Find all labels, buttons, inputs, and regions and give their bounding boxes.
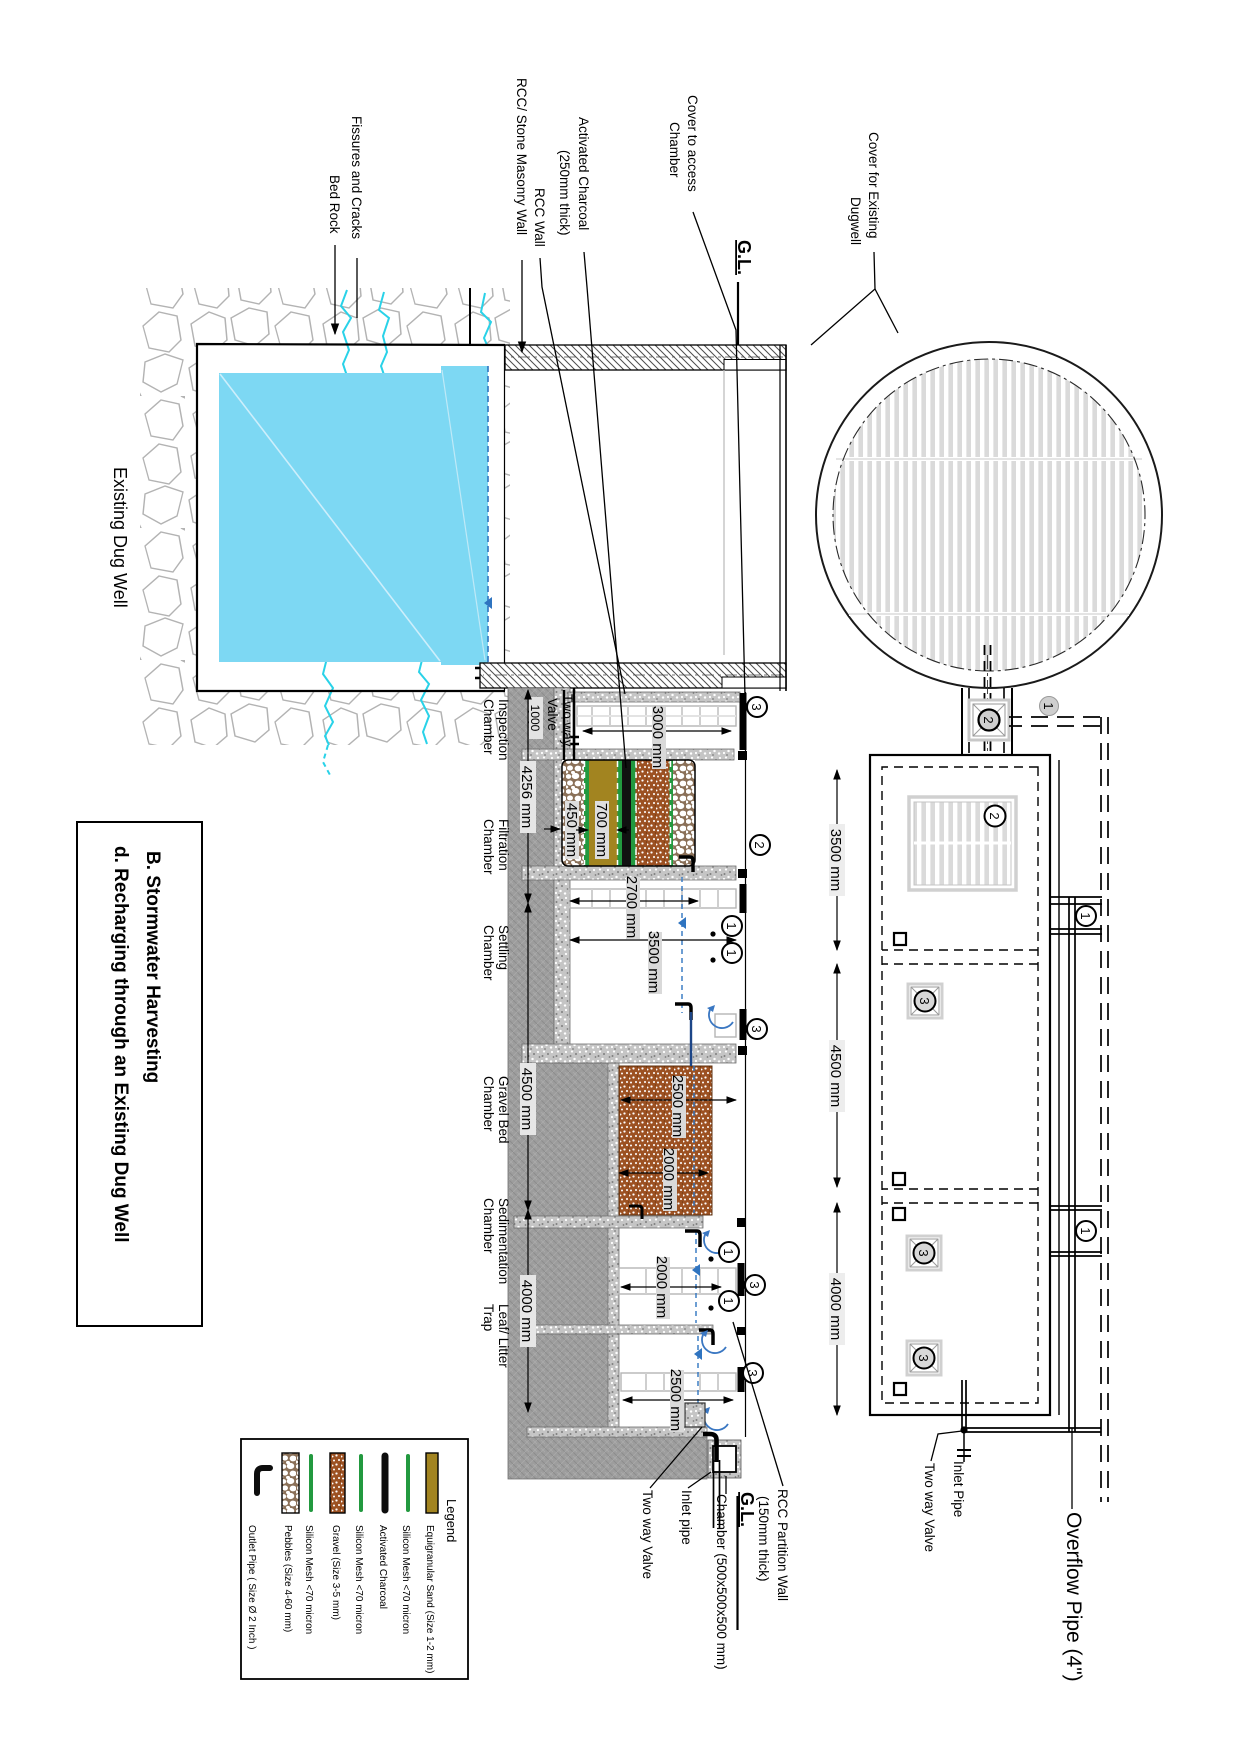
- svg-text:3: 3: [747, 1281, 762, 1288]
- svg-text:2: 2: [987, 812, 1002, 819]
- svg-text:Fissures and Cracks: Fissures and Cracks: [349, 116, 364, 239]
- svg-text:Silicon Mesh <70 micron: Silicon Mesh <70 micron: [303, 1525, 314, 1634]
- svg-text:B. Stormwater Harvesting: B. Stormwater Harvesting: [142, 851, 163, 1083]
- svg-text:Cover for Existing: Cover for Existing: [866, 132, 881, 239]
- svg-text:Two way Valve: Two way Valve: [640, 1490, 655, 1579]
- svg-text:4500 mm: 4500 mm: [518, 1068, 535, 1131]
- svg-text:2: 2: [981, 716, 996, 723]
- svg-text:Chamber: Chamber: [481, 819, 496, 875]
- svg-text:4256 mm: 4256 mm: [518, 766, 535, 829]
- svg-text:2000 mm: 2000 mm: [653, 1256, 670, 1319]
- svg-text:Two way Valve: Two way Valve: [922, 1463, 937, 1552]
- svg-text:3500 mm: 3500 mm: [827, 829, 844, 892]
- svg-text:Chamber (500x500x500 mm): Chamber (500x500x500 mm): [714, 1494, 729, 1670]
- svg-text:G.L.: G.L.: [734, 240, 754, 275]
- svg-text:G.L.: G.L.: [737, 1492, 757, 1527]
- svg-text:2500 mm: 2500 mm: [669, 1075, 686, 1138]
- svg-text:3000 mm: 3000 mm: [649, 706, 666, 769]
- svg-text:Activated Charcoal: Activated Charcoal: [377, 1525, 388, 1609]
- svg-text:Inlet pipe: Inlet pipe: [679, 1490, 694, 1545]
- svg-text:2500 mm: 2500 mm: [667, 1369, 684, 1432]
- svg-text:Legend: Legend: [444, 1499, 459, 1542]
- svg-text:2: 2: [752, 841, 767, 848]
- svg-text:Equigranular Sand (Size 1-2 mm: Equigranular Sand (Size 1-2 mm): [424, 1525, 435, 1673]
- svg-text:4000 mm: 4000 mm: [518, 1280, 535, 1343]
- svg-text:(250mm thick): (250mm thick): [557, 150, 572, 236]
- svg-text:3: 3: [917, 997, 932, 1004]
- svg-text:Inlet Pipe: Inlet Pipe: [951, 1461, 966, 1517]
- svg-text:Chamber: Chamber: [481, 1198, 496, 1254]
- svg-text:4500 mm: 4500 mm: [827, 1045, 844, 1108]
- svg-text:Filtration: Filtration: [496, 819, 511, 871]
- svg-text:1: 1: [724, 949, 739, 956]
- svg-text:Two way: Two way: [560, 694, 575, 747]
- svg-text:Silicon Mesh <70 micron: Silicon Mesh <70 micron: [353, 1525, 364, 1634]
- svg-text:Chamber: Chamber: [481, 699, 496, 755]
- svg-text:3: 3: [749, 1025, 764, 1032]
- svg-text:RCC Wall: RCC Wall: [532, 188, 547, 247]
- svg-text:Dugwell: Dugwell: [848, 197, 863, 245]
- svg-text:3: 3: [916, 1354, 931, 1361]
- svg-text:1: 1: [721, 1297, 736, 1304]
- svg-text:Overflow Pipe (4"): Overflow Pipe (4"): [1062, 1512, 1085, 1682]
- svg-text:3: 3: [916, 1249, 931, 1256]
- svg-text:Trap: Trap: [481, 1304, 496, 1331]
- svg-text:3500 mm: 3500 mm: [645, 931, 662, 994]
- svg-text:RCC/ Stone Masonry Wall: RCC/ Stone Masonry Wall: [514, 78, 529, 235]
- svg-text:1: 1: [1078, 1227, 1093, 1234]
- svg-text:1: 1: [1041, 702, 1056, 709]
- svg-text:d. Recharging through an Exis: d. Recharging through an Existing Dug We…: [110, 846, 131, 1243]
- svg-text:Gravel (Size 3-5 mm): Gravel (Size 3-5 mm): [330, 1525, 341, 1620]
- svg-text:2700 mm: 2700 mm: [623, 876, 640, 939]
- svg-text:1: 1: [724, 922, 739, 929]
- svg-text:Silicon Mesh <70 micron: Silicon Mesh <70 micron: [400, 1525, 411, 1634]
- svg-text:Cover to access: Cover to access: [685, 95, 700, 192]
- svg-text:Inspection: Inspection: [496, 699, 511, 761]
- svg-text:2000 mm: 2000 mm: [660, 1148, 677, 1211]
- svg-text:Chamber: Chamber: [667, 122, 682, 178]
- svg-text:Sedimentation: Sedimentation: [496, 1198, 511, 1284]
- svg-text:700 mm: 700 mm: [593, 803, 610, 857]
- svg-text:Gravel Bed: Gravel Bed: [496, 1076, 511, 1144]
- svg-text:Activated Charcoal: Activated Charcoal: [576, 117, 591, 230]
- svg-text:Pebbles (Size 4-60 mm): Pebbles (Size 4-60 mm): [282, 1525, 293, 1632]
- svg-text:1: 1: [721, 1248, 736, 1255]
- svg-text:1000: 1000: [528, 705, 542, 732]
- svg-text:(150mm thick): (150mm thick): [756, 1496, 771, 1582]
- svg-text:Existing Dug Well: Existing Dug Well: [110, 467, 130, 608]
- svg-text:4000 mm: 4000 mm: [827, 1278, 844, 1341]
- svg-text:Settling: Settling: [496, 925, 511, 970]
- svg-text:1: 1: [1078, 912, 1093, 919]
- svg-text:Chamber: Chamber: [481, 925, 496, 981]
- svg-text:RCC Partition Wall: RCC Partition Wall: [775, 1489, 790, 1601]
- svg-text:Bed Rock: Bed Rock: [327, 175, 342, 234]
- svg-text:Leaf/ Litter: Leaf/ Litter: [496, 1304, 511, 1368]
- svg-text:Valve: Valve: [545, 698, 560, 731]
- svg-text:Outlet Pipe ( Size Ø 2 Inch ): Outlet Pipe ( Size Ø 2 Inch ): [246, 1525, 257, 1650]
- svg-text:Chamber: Chamber: [481, 1076, 496, 1132]
- svg-text:3: 3: [749, 703, 764, 710]
